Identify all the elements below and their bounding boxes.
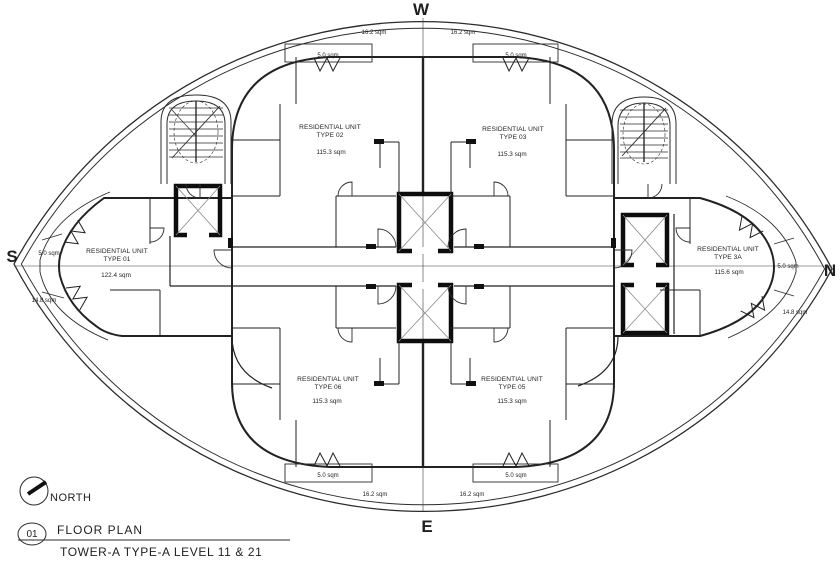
unit-03-type: TYPE 03 — [499, 134, 526, 141]
north-arrow-needle — [28, 482, 46, 494]
elevator-cores — [176, 186, 667, 341]
unit-3a-type: TYPE 3A — [714, 254, 742, 261]
drawing-subtitle: TOWER-A TYPE-A LEVEL 11 & 21 — [60, 545, 262, 559]
balcony-area-bottom-left: 5.0 sqm — [317, 473, 338, 479]
balcony-area-bottom-right: 5.0 sqm — [505, 473, 526, 479]
unit-03-area: 115.3 sqm — [497, 151, 526, 158]
unit-02-type: TYPE 02 — [316, 132, 343, 139]
balcony-boxes — [285, 44, 558, 482]
balcony-area-top-left: 5.0 sqm — [317, 53, 338, 59]
terrace-area-top-right: 16.2 sqm — [451, 30, 476, 36]
title-block: 01 FLOOR PLAN TOWER-A TYPE-A LEVEL 11 & … — [18, 523, 290, 559]
unit-01-name: RESIDENTIAL UNIT — [86, 248, 148, 255]
compass-north: N — [824, 261, 836, 280]
unit-3a-area: 115.6 sqm — [714, 269, 743, 276]
unit-02-area: 115.3 sqm — [316, 149, 345, 156]
terrace-area-bottom-right: 16.2 sqm — [460, 492, 485, 498]
unit-05-area: 115.3 sqm — [497, 398, 526, 405]
unit-05-type: TYPE 05 — [498, 384, 525, 391]
compass-south: S — [6, 247, 17, 266]
unit-05-name: RESIDENTIAL UNIT — [481, 376, 543, 383]
stair-right — [612, 97, 676, 184]
balcony-area-west: 5.0 sqm — [38, 251, 59, 257]
floor-plan-page: RESIDENTIAL UNIT TYPE 01 122.4 sqm RESID… — [0, 0, 840, 566]
drawing-title: FLOOR PLAN — [57, 523, 143, 537]
unit-01-area: 122.4 sqm — [101, 272, 131, 279]
unit-06-type: TYPE 06 — [314, 384, 341, 391]
unit-02-name: RESIDENTIAL UNIT — [299, 124, 361, 131]
unit-06-name: RESIDENTIAL UNIT — [297, 376, 359, 383]
unit-3a-name: RESIDENTIAL UNIT — [697, 246, 759, 253]
compass-letters: W E S N — [6, 0, 836, 536]
terrace-area-top-left: 16.2 sqm — [362, 30, 387, 36]
unit-03-name: RESIDENTIAL UNIT — [482, 126, 544, 133]
terrace-area-bottom-left: 16.2 sqm — [363, 492, 388, 498]
north-label: NORTH — [50, 492, 91, 504]
compass-west: W — [413, 0, 430, 19]
unit-01-type: TYPE 01 — [103, 256, 130, 263]
terrace-area-west: 14.8 sqm — [32, 298, 57, 304]
unit-06-area: 115.3 sqm — [312, 398, 341, 405]
detail-number: 01 — [26, 529, 38, 540]
compass-east: E — [421, 517, 432, 536]
stair-left — [161, 95, 231, 184]
terrace-area-east: 14.8 sqm — [783, 310, 808, 316]
north-arrow: NORTH — [20, 477, 91, 505]
balcony-area-top-right: 5.0 sqm — [505, 53, 526, 59]
floor-plan-drawing: RESIDENTIAL UNIT TYPE 01 122.4 sqm RESID… — [0, 0, 840, 566]
balcony-area-east: 5.0 sqm — [777, 264, 798, 270]
